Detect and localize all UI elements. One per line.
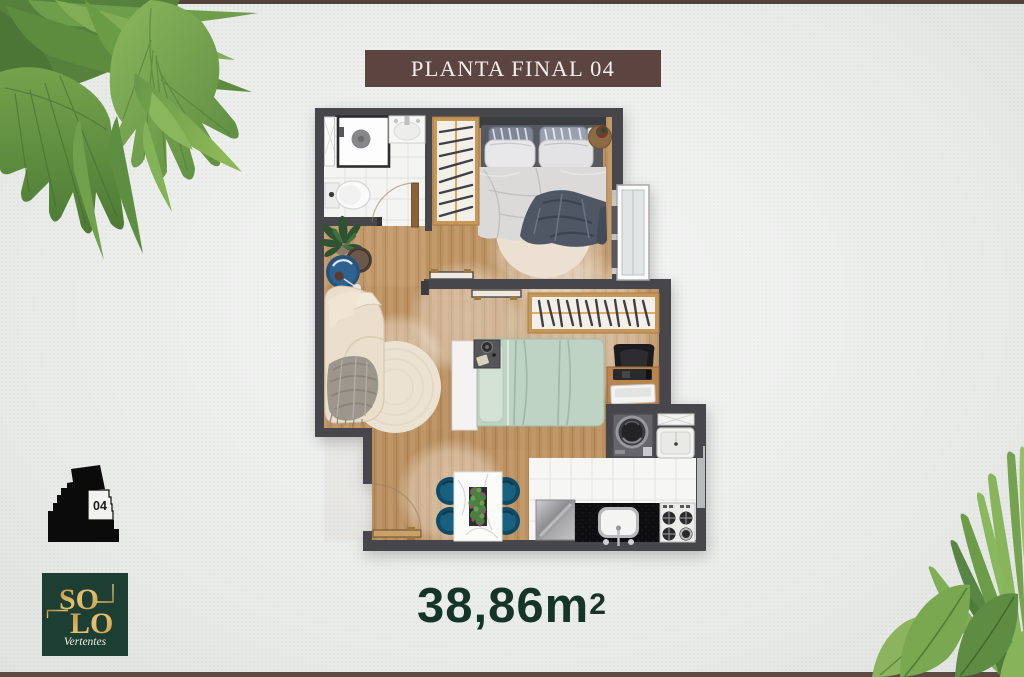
- svg-text:Vertentes: Vertentes: [64, 636, 107, 648]
- svg-text:04: 04: [93, 499, 107, 513]
